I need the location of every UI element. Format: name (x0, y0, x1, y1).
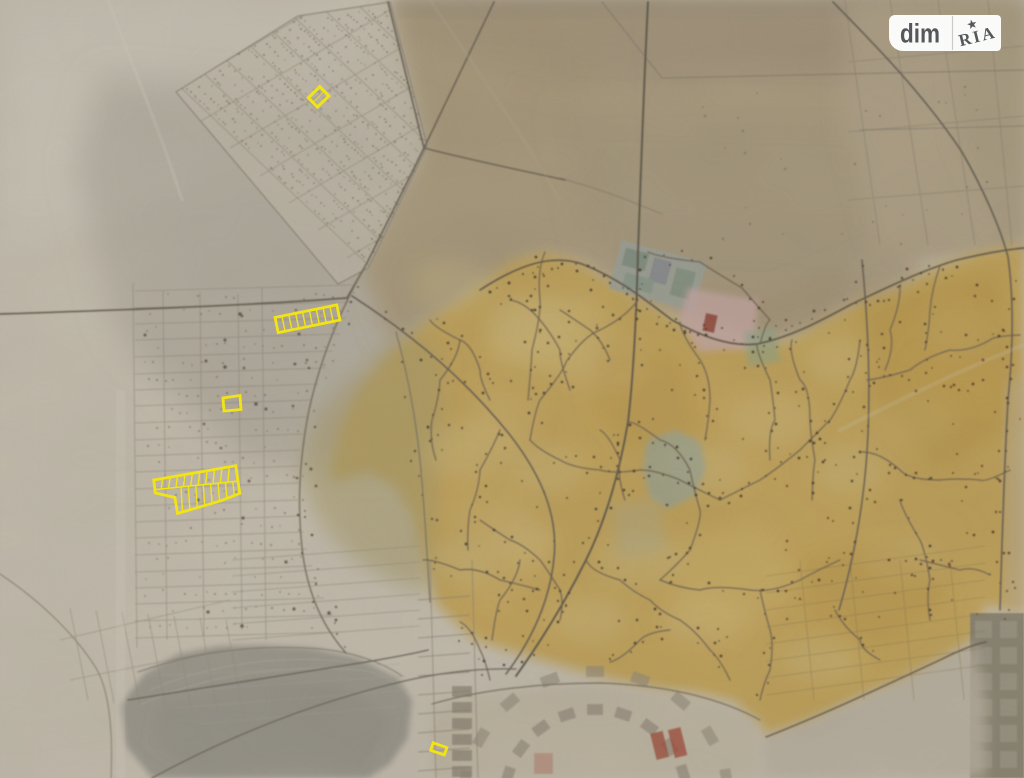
svg-text:dim: dim (900, 19, 940, 49)
